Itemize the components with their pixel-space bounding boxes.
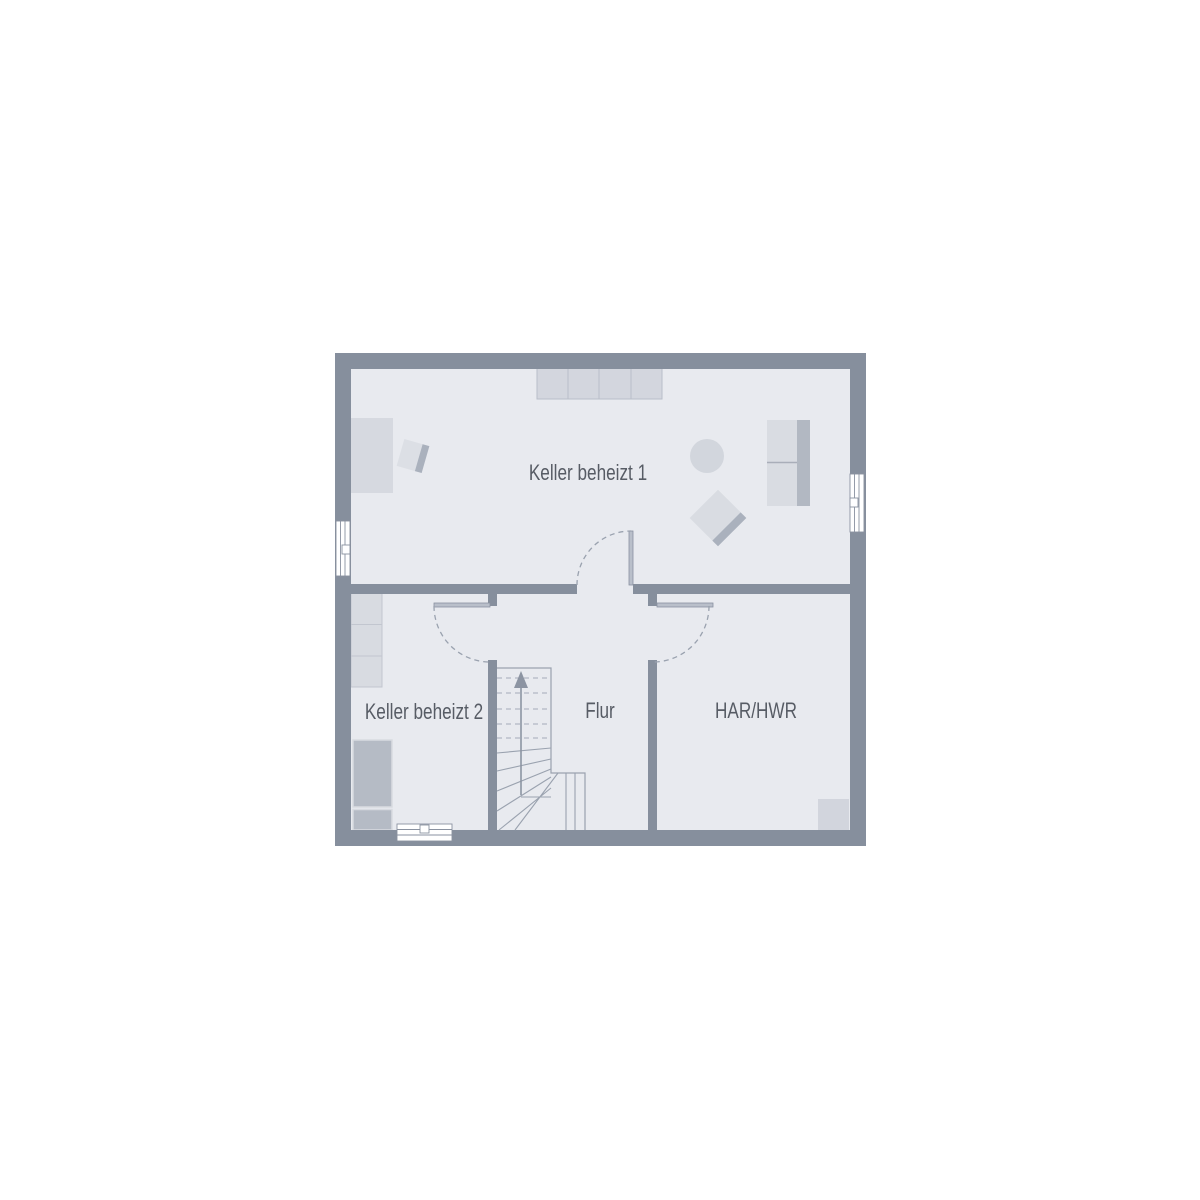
window-left [336, 521, 350, 576]
wardrobe [767, 420, 810, 506]
room-label-keller-beheizt-1: Keller beheizt 1 [529, 460, 647, 486]
outer-wall-left [335, 353, 351, 846]
wardrobe-side [797, 420, 810, 506]
interior-wall-middle-left [351, 584, 577, 594]
outer-wall-top [335, 353, 866, 369]
window-right-handle [850, 498, 858, 507]
bed-mattress [353, 740, 392, 807]
door-leaf-keller2 [434, 603, 490, 607]
door-leaf-keller1 [629, 531, 633, 585]
sofa [351, 418, 393, 493]
round-table [690, 439, 724, 473]
outer-wall-right [850, 353, 866, 846]
interior-wall-har [648, 660, 657, 830]
door-leaf-har [657, 603, 713, 607]
window-bottom [397, 824, 452, 841]
sideboard [537, 368, 662, 399]
interior-wall-middle-right [633, 584, 850, 594]
cabinet-stack [351, 593, 382, 687]
cabinet-body [351, 593, 382, 687]
interior-wall-har-stub [648, 594, 657, 606]
floorplan-drawing [0, 0, 1200, 1200]
room-label-flur: Flur [585, 698, 615, 724]
room-label-keller-beheizt-2: Keller beheizt 2 [365, 699, 483, 725]
interior-wall-keller2 [488, 660, 497, 830]
room-label-har-hwr: HAR/HWR [715, 698, 797, 724]
bed-foot [353, 810, 392, 831]
bed [353, 740, 392, 830]
floorplan-canvas: Keller beheizt 1 Keller beheizt 2 Flur H… [0, 0, 1200, 1200]
window-bottom-handle [420, 825, 429, 833]
window-left-handle [342, 545, 350, 554]
window-right [850, 474, 864, 532]
duct-shaft [818, 799, 849, 830]
